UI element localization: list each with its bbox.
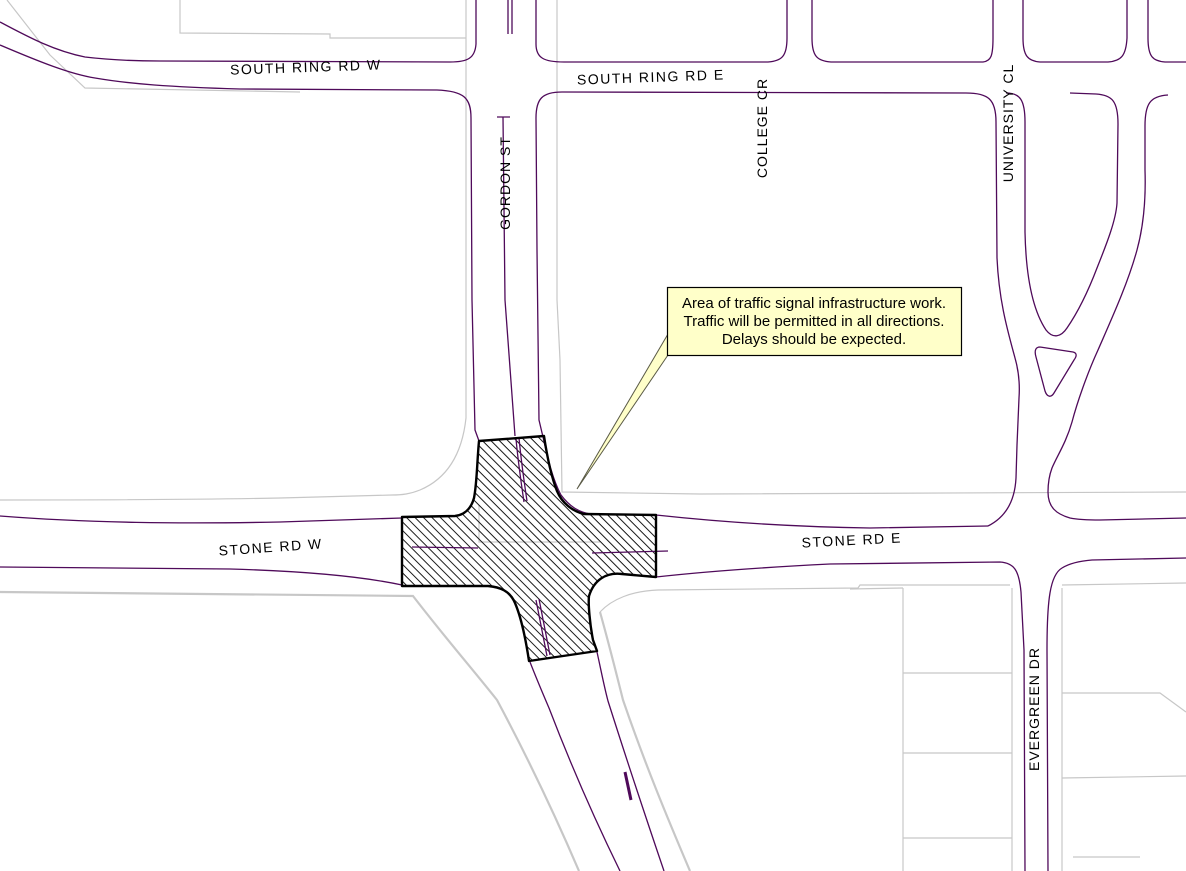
road-label-gordon-st: GORDON ST: [497, 136, 513, 230]
road-label-south-ring-rd-w: SOUTH RING RD W: [230, 56, 382, 77]
street-labels: SOUTH RING RD W SOUTH RING RD E GORDON S…: [218, 56, 1042, 771]
callout-text-line-1: Area of traffic signal infrastructure wo…: [682, 295, 946, 312]
work-zone-hatch: [402, 436, 668, 661]
road-label-stone-rd-e: STONE RD E: [801, 529, 902, 550]
work-zone-area: [402, 436, 656, 661]
callout-leader: [577, 334, 668, 489]
map-canvas: Area of traffic signal infrastructure wo…: [0, 0, 1186, 871]
callout-text-line-2: Traffic will be permitted in all directi…: [684, 313, 945, 330]
road-label-stone-rd-w: STONE RD W: [218, 535, 323, 558]
construction-notice-map: Area of traffic signal infrastructure wo…: [0, 0, 1186, 871]
callout-text-line-3: Delays should be expected.: [722, 331, 906, 348]
road-label-university-cl: UNIVERSITY CL: [1000, 64, 1016, 183]
road-label-college-cr: COLLEGE CR: [754, 78, 770, 178]
road-label-south-ring-rd-e: SOUTH RING RD E: [577, 66, 725, 87]
road-label-evergreen-dr: EVERGREEN DR: [1026, 647, 1042, 771]
callout: Area of traffic signal infrastructure wo…: [577, 288, 962, 490]
